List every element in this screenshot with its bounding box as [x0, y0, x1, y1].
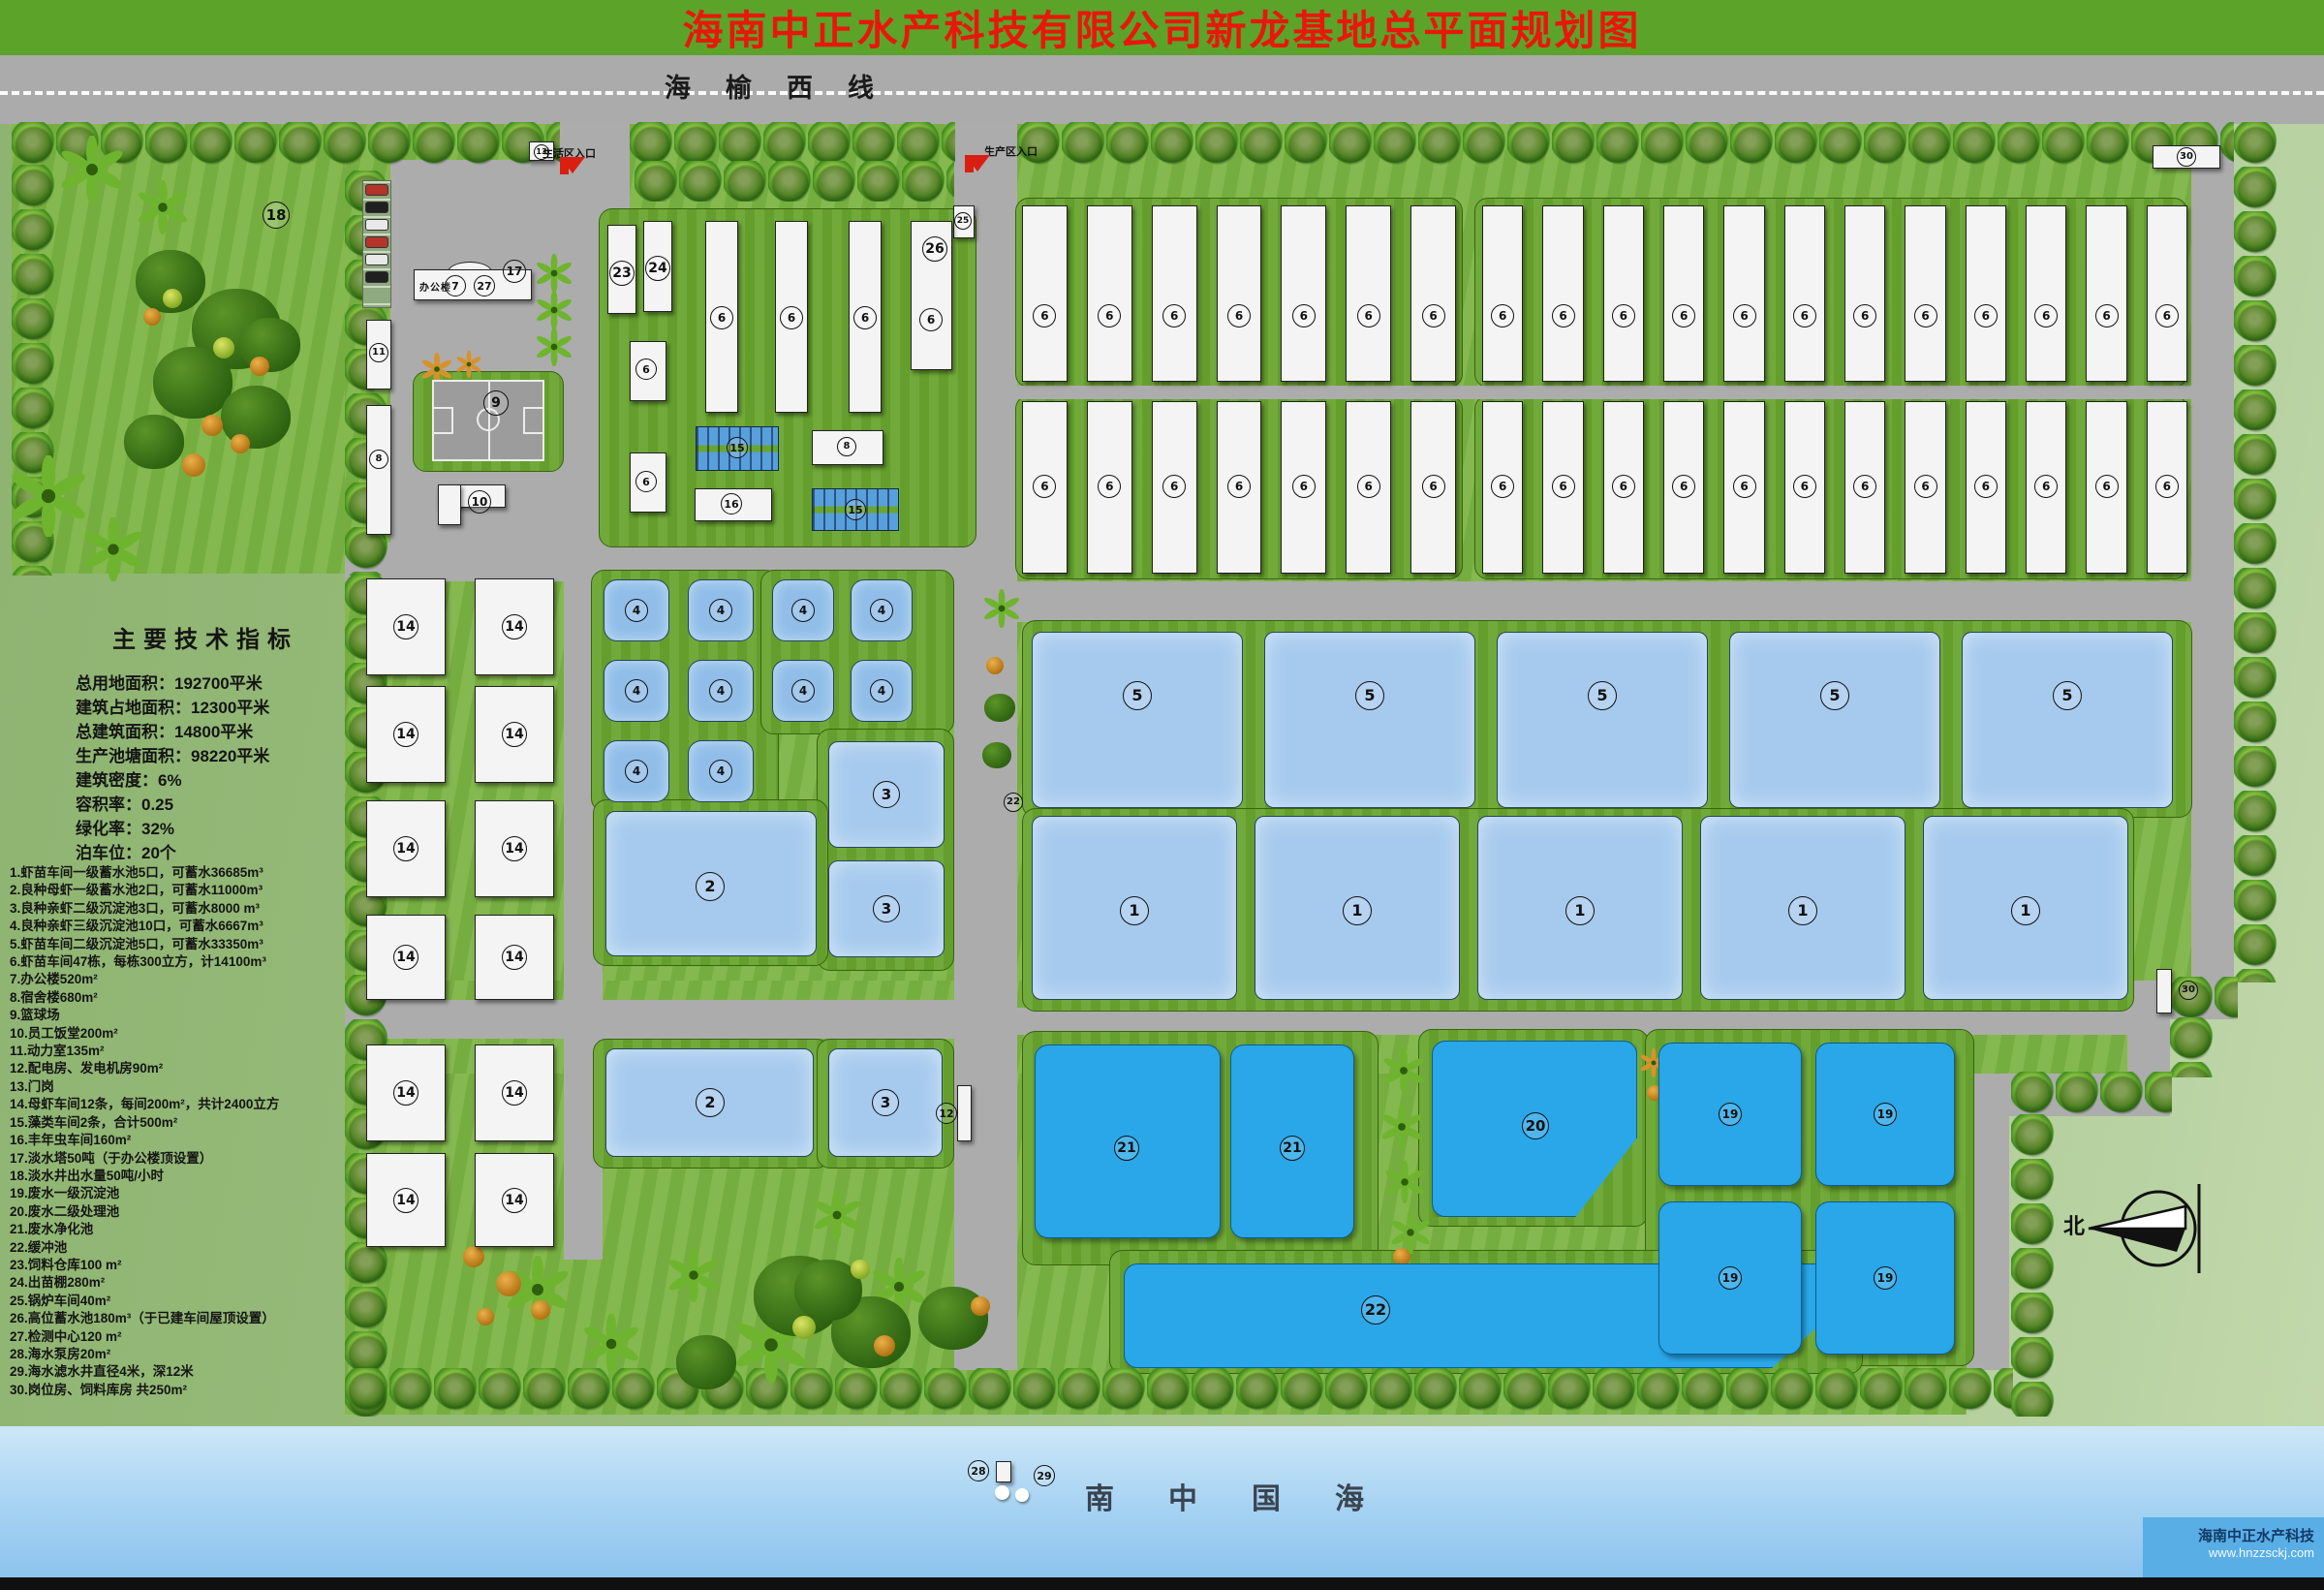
- legend-list-item: 22.缓冲池: [10, 1239, 351, 1257]
- marker-2: 2: [696, 872, 725, 901]
- palm-tree-icon: [982, 589, 1021, 628]
- marker-4: 4: [870, 679, 893, 702]
- indicators-list-item: 建筑密度：6%: [76, 768, 356, 793]
- marker-6: 6: [1793, 304, 1816, 327]
- indicators-list-item: 建筑占地面积：12300平米: [76, 696, 356, 720]
- palm-tree-icon: [666, 1248, 721, 1302]
- palm-tree-icon: [581, 1314, 641, 1374]
- orange-bush: [477, 1308, 494, 1325]
- marker-6: 6: [1162, 475, 1186, 498]
- legend-list-item: 6.虾苗车间47栋，每栋300立方，计14100m³: [10, 953, 351, 971]
- marker-3: 3: [873, 895, 900, 922]
- marker-14: 14: [393, 1188, 418, 1213]
- pond: [1264, 632, 1475, 808]
- palm-tree-icon: [535, 291, 573, 329]
- marker-21: 21: [1114, 1136, 1139, 1161]
- palm-tree-icon: [1381, 1048, 1426, 1093]
- marker-15: 15: [845, 499, 866, 520]
- marker-6: 6: [1422, 475, 1445, 498]
- marker-4: 4: [625, 679, 648, 702]
- marker-6: 6: [635, 471, 657, 492]
- palm-tree-icon: [58, 136, 126, 203]
- sea: 南中国海 海南中正水产科技 www.hnzzsckj.com: [0, 1426, 2324, 1577]
- orange-bush: [231, 434, 250, 453]
- legend-list-item: 23.饲料仓库100 m²: [10, 1257, 351, 1274]
- marker-5: 5: [1820, 681, 1849, 710]
- marker-4: 4: [709, 760, 732, 783]
- highway: 海榆西线: [0, 55, 2324, 124]
- indicators-list-item: 绿化率：32%: [76, 817, 356, 841]
- legend-list-item: 13.门岗: [10, 1078, 351, 1096]
- marker-17: 17: [503, 260, 526, 283]
- marker-1: 1: [1343, 896, 1372, 925]
- marker-4: 4: [791, 599, 815, 622]
- marker-6: 6: [1612, 304, 1635, 327]
- building: [366, 405, 391, 535]
- legend-list-item: 28.海水泵房20m²: [10, 1346, 351, 1363]
- marker-12: 12: [936, 1103, 957, 1124]
- marker-20: 20: [1522, 1112, 1549, 1139]
- legend-list-item: 16.丰年虫车间160m²: [10, 1132, 351, 1149]
- orange-bush: [986, 657, 1004, 674]
- marker-4: 4: [709, 679, 732, 702]
- legend-list-item: 3.良种亲虾二级沉淀池3口，可蓄水8000 m³: [10, 900, 351, 918]
- marker-6: 6: [919, 308, 943, 331]
- shrimp-workshop: [1087, 205, 1132, 382]
- marker-5: 5: [1123, 681, 1152, 710]
- shrimp-workshop: [1723, 205, 1764, 382]
- marker-6: 6: [1733, 304, 1756, 327]
- palm-tree-icon: [81, 517, 145, 581]
- legend-list-item: 11.动力室135m²: [10, 1043, 351, 1060]
- marker-6: 6: [1552, 304, 1575, 327]
- marker-30: 30: [2177, 147, 2196, 167]
- legend-list-item: 12.配电房、发电机房90m²: [10, 1060, 351, 1077]
- marker-5: 5: [2053, 681, 2082, 710]
- tree-row: [345, 1368, 2013, 1415]
- palm-tree-icon: [535, 327, 573, 366]
- marker-15: 15: [727, 437, 748, 458]
- legend-list-item: 7.办公楼520m²: [10, 971, 351, 988]
- legend-list-item: 10.员工饭堂200m²: [10, 1025, 351, 1043]
- marker-6: 6: [1292, 304, 1316, 327]
- road: [1017, 386, 2191, 399]
- marker-6: 6: [1853, 304, 1876, 327]
- marker-14: 14: [502, 722, 527, 747]
- bottom-black-bar: [0, 1577, 2324, 1590]
- marker-6: 6: [1853, 475, 1876, 498]
- marker-6: 6: [2034, 475, 2058, 498]
- site-plan-stage: 6666666666666666666666666666666666666655…: [0, 0, 2324, 1590]
- marker-22: 22: [1361, 1295, 1390, 1325]
- marker-4: 4: [625, 760, 648, 783]
- tree-cluster: [676, 1335, 736, 1389]
- tree-row: [2011, 1114, 2056, 1417]
- indicators-list-item: 泊车位：20个: [76, 841, 356, 865]
- marker-5: 5: [1588, 681, 1617, 710]
- tree-row: [2234, 122, 2278, 982]
- legend-list-item: 30.岗位房、饲料库房 共250m²: [10, 1382, 351, 1399]
- marker-6: 6: [1292, 475, 1316, 498]
- palm-tree-icon: [1379, 1105, 1424, 1149]
- building: [957, 1085, 972, 1141]
- marker-27: 27: [474, 275, 495, 296]
- marker-4: 4: [625, 599, 648, 622]
- shrimp-workshop: [1542, 205, 1583, 382]
- legend-list-item: 4.良种亲虾三级沉淀池10口，可蓄水6667m³: [10, 918, 351, 935]
- marker-16: 16: [721, 493, 742, 514]
- marker-3: 3: [873, 781, 900, 808]
- shrimp-workshop: [2086, 205, 2126, 382]
- indicators-title: 主要技术指标: [112, 620, 356, 654]
- marker-6: 6: [1974, 475, 1998, 498]
- marker-8: 8: [837, 437, 856, 456]
- tree-row: [2170, 1017, 2215, 1077]
- marker-6: 6: [1974, 304, 1998, 327]
- marker-6: 6: [710, 306, 733, 329]
- legend-list-item: 14.母虾车间12条，每间200m²，共计2400立方: [10, 1096, 351, 1113]
- marker-19: 19: [1874, 1103, 1897, 1126]
- road: [1017, 581, 2191, 622]
- marker-6: 6: [780, 306, 803, 329]
- marker-8: 8: [369, 450, 388, 469]
- legend-list-item: 18.淡水井出水量50吨/小时: [10, 1168, 351, 1185]
- pond: [1962, 632, 2173, 808]
- tree-row: [2011, 1072, 2172, 1114]
- marker-6: 6: [1357, 304, 1380, 327]
- orange-bush: [143, 308, 161, 326]
- shrimp-workshop: [1784, 205, 1825, 382]
- parked-car: [365, 202, 388, 213]
- marker-22: 22: [1004, 793, 1023, 812]
- marker-14: 14: [502, 836, 527, 861]
- legend-list-item: 20.废水二级处理池: [10, 1203, 351, 1221]
- marker-25: 25: [954, 212, 972, 230]
- parked-car: [365, 271, 388, 283]
- marker-6: 6: [853, 306, 877, 329]
- marker-6: 6: [1227, 304, 1251, 327]
- marker-6: 6: [1612, 475, 1635, 498]
- building: [438, 484, 461, 525]
- sea-well-dot: [995, 1485, 1009, 1500]
- parked-car: [365, 254, 388, 265]
- legend-list-item: 8.宿舍楼680m²: [10, 989, 351, 1007]
- legend-list-item: 9.篮球场: [10, 1007, 351, 1024]
- marker-6: 6: [1162, 304, 1186, 327]
- marker-6: 6: [1491, 304, 1514, 327]
- marker-30: 30: [2179, 981, 2198, 1000]
- brand-name: 海南中正水产科技: [2143, 1525, 2314, 1545]
- marker-6: 6: [1733, 475, 1756, 498]
- marker-3: 3: [872, 1089, 899, 1116]
- marker-18: 18: [263, 202, 290, 229]
- shrimp-workshop: [2147, 205, 2187, 382]
- title-band: 海南中正水产科技有限公司新龙基地总平面规划图: [0, 0, 2324, 55]
- shrimp-workshop: [1482, 205, 1523, 382]
- marker-6: 6: [1672, 304, 1695, 327]
- marker-6: 6: [1357, 475, 1380, 498]
- marker-6: 6: [1227, 475, 1251, 498]
- road: [345, 1000, 954, 1039]
- marker-1: 1: [1565, 896, 1595, 925]
- legend-list-item: 15.藻类车间2条，合计500m²: [10, 1114, 351, 1132]
- shrimp-workshop: [1022, 205, 1068, 382]
- orange-bush: [463, 1246, 484, 1267]
- yellow-bush: [163, 289, 182, 308]
- marker-6: 6: [2095, 304, 2119, 327]
- palm-tree-icon: [8, 455, 89, 537]
- marker-14: 14: [393, 945, 418, 970]
- building: [2156, 969, 2172, 1013]
- marker-28: 28: [968, 1460, 989, 1481]
- sea-name: 南中国海: [1085, 1475, 1418, 1517]
- marker-4: 4: [791, 679, 815, 702]
- production-entrance-label: 生产区入口: [984, 143, 1038, 159]
- pond: [1032, 632, 1243, 808]
- yellow-bush: [851, 1260, 870, 1279]
- marker-19: 19: [1719, 1266, 1742, 1290]
- tree-row: [635, 161, 954, 202]
- building: [996, 1461, 1011, 1482]
- legend-list: 1.虾苗车间一级蓄水池5口，可蓄水36685m³2.良种母虾一级蓄水池2口，可蓄…: [10, 864, 351, 1399]
- legend-list-item: 29.海水滤水井直径4米，深12米: [10, 1363, 351, 1381]
- tree-cluster: [124, 415, 184, 469]
- shrimp-workshop: [1346, 205, 1391, 382]
- parked-car: [365, 219, 388, 231]
- marker-1: 1: [2011, 896, 2040, 925]
- marker-6: 6: [1552, 475, 1575, 498]
- marker-6: 6: [2034, 304, 2058, 327]
- yellow-bush: [213, 337, 234, 359]
- legend-list-item: 24.出苗棚280m²: [10, 1274, 351, 1292]
- shrimp-workshop: [1217, 205, 1262, 382]
- marker-14: 14: [393, 614, 418, 639]
- court-key-right: [523, 407, 542, 434]
- marker-4: 4: [870, 599, 893, 622]
- marker-6: 6: [2095, 475, 2119, 498]
- orange-bush: [182, 453, 205, 477]
- highway-name: 海榆西线: [665, 67, 909, 105]
- technical-indicators: 主要技术指标 总用地面积：192700平米建筑占地面积：12300平米总建筑面积…: [76, 620, 356, 865]
- tree-row: [1017, 122, 2234, 167]
- orange-bush: [874, 1335, 895, 1356]
- marker-1: 1: [1120, 896, 1149, 925]
- marker-14: 14: [502, 1080, 527, 1106]
- indicators-list-item: 总用地面积：192700平米: [76, 671, 356, 696]
- page-title: 海南中正水产科技有限公司新龙基地总平面规划图: [682, 0, 1641, 57]
- marker-6: 6: [1422, 304, 1445, 327]
- compass-north-label: 北: [2063, 1209, 2085, 1240]
- indicators-list-item: 生产池塘面积：98220平米: [76, 744, 356, 768]
- shrimp-workshop: [1281, 205, 1326, 382]
- marker-7: 7: [445, 275, 466, 296]
- shrimp-workshop: [1603, 205, 1644, 382]
- marker-6: 6: [635, 359, 657, 380]
- palm-tree-icon: [812, 1190, 862, 1240]
- tree-cluster: [984, 694, 1015, 722]
- marker-6: 6: [1793, 475, 1816, 498]
- shrimp-workshop: [1966, 205, 2006, 382]
- road: [2191, 92, 2234, 1019]
- marker-23: 23: [609, 261, 635, 286]
- marker-11: 11: [369, 343, 388, 362]
- shrimp-workshop: [1905, 205, 1945, 382]
- marker-21: 21: [1280, 1136, 1305, 1161]
- shrimp-workshop: [2026, 205, 2066, 382]
- marker-29: 29: [1034, 1465, 1055, 1486]
- marker-5: 5: [1355, 681, 1384, 710]
- legend-list-item: 17.淡水塔50吨（于办公楼顶设置）: [10, 1150, 351, 1168]
- brand-url: www.hnzzsckj.com: [2143, 1545, 2314, 1560]
- marker-26: 26: [922, 236, 947, 262]
- pond: [1497, 632, 1708, 808]
- marker-14: 14: [393, 722, 418, 747]
- palm-tree-icon: [455, 351, 482, 378]
- parked-car: [365, 236, 388, 248]
- marker-24: 24: [645, 256, 670, 281]
- orange-bush: [250, 357, 269, 376]
- palm-tree-icon: [535, 254, 573, 293]
- indicators-list-item: 总建筑面积：14800平米: [76, 720, 356, 744]
- yellow-bush: [792, 1316, 816, 1339]
- marker-6: 6: [1914, 304, 1937, 327]
- marker-2: 2: [696, 1088, 725, 1117]
- legend-list-item: 19.废水一级沉淀池: [10, 1185, 351, 1202]
- court-key-left: [434, 407, 453, 434]
- orange-bush: [496, 1271, 521, 1296]
- legend-list-item: 25.锅炉车间40m²: [10, 1293, 351, 1310]
- marker-14: 14: [502, 1188, 527, 1213]
- pond: [1729, 632, 1940, 808]
- marker-6: 6: [1491, 475, 1514, 498]
- marker-6: 6: [2155, 475, 2179, 498]
- marker-14: 14: [393, 1080, 418, 1106]
- orange-bush: [201, 415, 223, 436]
- legend-list-item: 26.高位蓄水池180m³（于已建车间屋顶设置）: [10, 1310, 351, 1327]
- road: [2127, 1019, 2170, 1074]
- orange-bush: [531, 1300, 550, 1320]
- marker-6: 6: [2155, 304, 2179, 327]
- marker-19: 19: [1874, 1266, 1897, 1290]
- palm-tree-icon: [136, 180, 190, 234]
- marker-14: 14: [502, 945, 527, 970]
- marker-1: 1: [1788, 896, 1817, 925]
- legend-list-item: 21.废水净化池: [10, 1221, 351, 1238]
- compass-icon: [2061, 1180, 2226, 1277]
- palm-tree-icon: [1383, 1161, 1426, 1203]
- marker-14: 14: [502, 614, 527, 639]
- orange-bush: [971, 1296, 990, 1316]
- shrimp-workshop: [1844, 205, 1885, 382]
- shrimp-workshop: [1663, 205, 1704, 382]
- shrimp-workshop: [1152, 205, 1197, 382]
- parked-car: [365, 184, 388, 196]
- marker-6: 6: [1914, 475, 1937, 498]
- marker-6: 6: [1672, 475, 1695, 498]
- shrimp-workshop: [1410, 205, 1456, 382]
- legend-list-item: 27.检测中心120 m²: [10, 1328, 351, 1346]
- marker-19: 19: [1719, 1103, 1742, 1126]
- marker-9: 9: [483, 390, 509, 416]
- orange-bush: [1393, 1248, 1410, 1265]
- legend-list-item: 5.虾苗车间二级沉淀池5口，可蓄水33350m³: [10, 936, 351, 953]
- brand-box: 海南中正水产科技 www.hnzzsckj.com: [2143, 1517, 2324, 1577]
- sea-well-dot: [1015, 1488, 1029, 1502]
- marker-10: 10: [468, 490, 491, 514]
- indicators-list-item: 容积率：0.25: [76, 793, 356, 817]
- legend-list-item: 2.良种母虾一级蓄水池2口，可蓄水11000m³: [10, 882, 351, 899]
- palm-tree-icon: [1389, 1211, 1432, 1254]
- tree-cluster: [982, 742, 1011, 768]
- indicators-list: 总用地面积：192700平米建筑占地面积：12300平米总建筑面积：14800平…: [76, 671, 356, 865]
- legend-list-item: 1.虾苗车间一级蓄水池5口，可蓄水36685m³: [10, 864, 351, 882]
- highway-center-dash-line: [0, 91, 2324, 95]
- marker-4: 4: [709, 599, 732, 622]
- marker-14: 14: [393, 836, 418, 861]
